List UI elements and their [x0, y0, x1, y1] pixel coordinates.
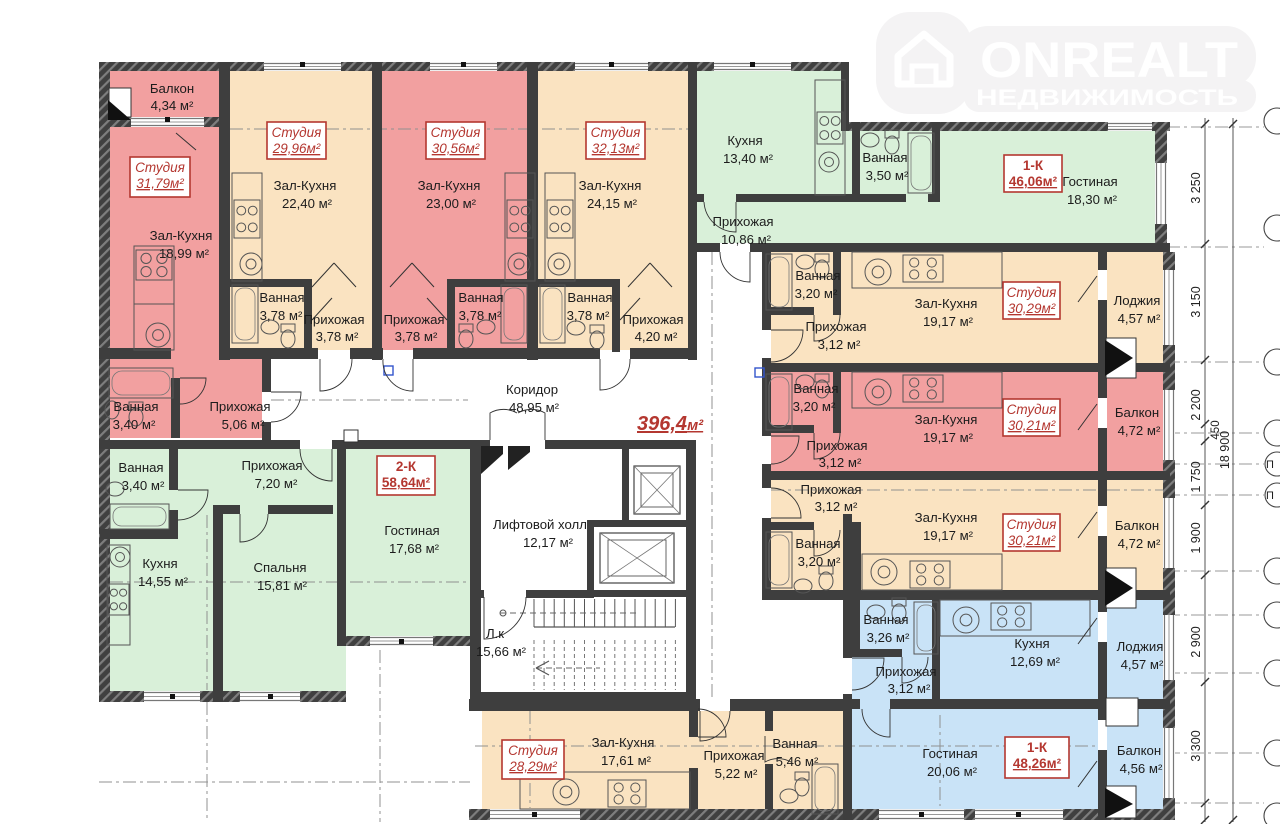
- svg-text:23,00 м²: 23,00 м²: [426, 196, 477, 211]
- svg-text:Прихожая: Прихожая: [805, 319, 866, 334]
- svg-text:Прихожая: Прихожая: [622, 312, 683, 327]
- svg-text:3,78 м²: 3,78 м²: [260, 308, 303, 323]
- svg-text:3,12 м²: 3,12 м²: [819, 455, 862, 470]
- svg-text:4,57 м²: 4,57 м²: [1118, 311, 1161, 326]
- svg-text:Кухня: Кухня: [727, 133, 762, 148]
- svg-text:Лифтовой холл: Лифтовой холл: [493, 517, 587, 532]
- svg-text:3 150: 3 150: [1189, 286, 1203, 317]
- svg-text:Зал-Кухня: Зал-Кухня: [915, 510, 978, 525]
- svg-text:22,40 м²: 22,40 м²: [282, 196, 333, 211]
- svg-text:28,29м²: 28,29м²: [508, 759, 557, 774]
- svg-text:31,79м²: 31,79м²: [136, 176, 184, 191]
- svg-text:П: П: [1266, 459, 1274, 471]
- svg-text:3,12 м²: 3,12 м²: [818, 337, 861, 352]
- svg-text:2 200: 2 200: [1189, 389, 1203, 420]
- svg-text:12,69 м²: 12,69 м²: [1010, 654, 1061, 669]
- svg-text:3 300: 3 300: [1189, 730, 1203, 761]
- svg-text:Прихожая: Прихожая: [806, 438, 867, 453]
- svg-text:30,29м²: 30,29м²: [1008, 301, 1056, 316]
- svg-text:3,78 м²: 3,78 м²: [316, 329, 359, 344]
- svg-text:Прихожая: Прихожая: [875, 664, 936, 679]
- svg-text:17,61 м²: 17,61 м²: [601, 753, 652, 768]
- svg-text:Ванная: Ванная: [863, 612, 908, 627]
- svg-text:Кухня: Кухня: [1014, 636, 1049, 651]
- svg-text:Балкон: Балкон: [150, 81, 194, 96]
- svg-text:4,72 м²: 4,72 м²: [1118, 423, 1161, 438]
- svg-text:Студия: Студия: [135, 160, 185, 175]
- svg-text:Ванная: Ванная: [862, 150, 907, 165]
- svg-text:3,20 м²: 3,20 м²: [793, 399, 836, 414]
- svg-text:12,17 м²: 12,17 м²: [523, 535, 574, 550]
- svg-text:5,06 м²: 5,06 м²: [222, 417, 265, 432]
- svg-text:Студия: Студия: [1007, 285, 1057, 300]
- svg-text:Зал-Кухня: Зал-Кухня: [592, 735, 655, 750]
- svg-text:Прихожая: Прихожая: [241, 458, 302, 473]
- svg-text:3,12 м²: 3,12 м²: [815, 499, 858, 514]
- svg-text:1 750: 1 750: [1189, 461, 1203, 492]
- svg-text:Зал-Кухня: Зал-Кухня: [579, 178, 642, 193]
- svg-text:Прихожая: Прихожая: [703, 748, 764, 763]
- svg-text:П: П: [1266, 490, 1274, 502]
- svg-text:10,86 м²: 10,86 м²: [721, 232, 772, 247]
- svg-text:3,20 м²: 3,20 м²: [798, 554, 841, 569]
- svg-text:19,17 м²: 19,17 м²: [923, 314, 974, 329]
- svg-text:3,50 м²: 3,50 м²: [866, 168, 909, 183]
- svg-text:1-К: 1-К: [1027, 740, 1048, 755]
- svg-text:29,96м²: 29,96м²: [272, 141, 321, 156]
- svg-text:Спальня: Спальня: [254, 560, 307, 575]
- svg-text:Студия: Студия: [1007, 517, 1057, 532]
- svg-text:2 900: 2 900: [1189, 626, 1203, 657]
- svg-text:4,57 м²: 4,57 м²: [1121, 657, 1164, 672]
- svg-text:24,15 м²: 24,15 м²: [587, 196, 638, 211]
- svg-text:3,26 м²: 3,26 м²: [867, 630, 910, 645]
- svg-text:3,40 м²: 3,40 м²: [122, 478, 165, 493]
- svg-text:30,21м²: 30,21м²: [1008, 533, 1056, 548]
- svg-text:Ванная: Ванная: [793, 381, 838, 396]
- svg-text:Студия: Студия: [272, 125, 322, 140]
- svg-text:48,26м²: 48,26м²: [1013, 756, 1062, 771]
- svg-text:Л.к: Л.к: [486, 626, 504, 641]
- svg-text:396,4м²: 396,4м²: [637, 413, 704, 435]
- svg-text:Кухня: Кухня: [142, 556, 177, 571]
- svg-text:30,56м²: 30,56м²: [432, 141, 480, 156]
- svg-text:4,72 м²: 4,72 м²: [1118, 536, 1161, 551]
- svg-text:Ванная: Ванная: [795, 268, 840, 283]
- svg-text:Ванная: Ванная: [113, 399, 158, 414]
- svg-text:Гостиная: Гостиная: [1062, 174, 1117, 189]
- svg-text:15,81 м²: 15,81 м²: [257, 578, 308, 593]
- svg-text:НЕДВИЖИМОСТЬ: НЕДВИЖИМОСТЬ: [976, 85, 1238, 110]
- svg-text:32,13м²: 32,13м²: [592, 141, 640, 156]
- svg-text:3 250: 3 250: [1189, 172, 1203, 203]
- svg-text:4,20 м²: 4,20 м²: [635, 329, 678, 344]
- svg-text:Студия: Студия: [591, 125, 641, 140]
- svg-text:ONREALT: ONREALT: [980, 32, 1238, 88]
- svg-text:Зал-Кухня: Зал-Кухня: [418, 178, 481, 193]
- svg-text:18,99 м²: 18,99 м²: [159, 246, 210, 261]
- svg-text:Прихожая: Прихожая: [303, 312, 364, 327]
- svg-text:46,06м²: 46,06м²: [1009, 174, 1058, 189]
- svg-text:48,95 м²: 48,95 м²: [509, 400, 560, 415]
- svg-text:1-К: 1-К: [1023, 158, 1044, 173]
- svg-text:Студия: Студия: [431, 125, 481, 140]
- svg-text:Ванная: Ванная: [118, 460, 163, 475]
- svg-text:4,56 м²: 4,56 м²: [1120, 761, 1163, 776]
- svg-text:3,78 м²: 3,78 м²: [395, 329, 438, 344]
- svg-text:30,21м²: 30,21м²: [1008, 418, 1056, 433]
- svg-text:Зал-Кухня: Зал-Кухня: [915, 296, 978, 311]
- svg-text:3,78 м²: 3,78 м²: [567, 308, 610, 323]
- svg-text:19,17 м²: 19,17 м²: [923, 528, 974, 543]
- svg-text:Студия: Студия: [1007, 402, 1057, 417]
- svg-text:Ванная: Ванная: [795, 536, 840, 551]
- svg-text:3,40 м²: 3,40 м²: [113, 417, 156, 432]
- svg-text:Балкон: Балкон: [1117, 743, 1161, 758]
- svg-text:13,40 м²: 13,40 м²: [723, 151, 774, 166]
- svg-text:58,64м²: 58,64м²: [382, 475, 431, 490]
- svg-text:Прихожая: Прихожая: [800, 482, 861, 497]
- svg-text:3,20 м²: 3,20 м²: [795, 286, 838, 301]
- svg-text:Коридор: Коридор: [506, 382, 558, 397]
- svg-text:Ванная: Ванная: [772, 736, 817, 751]
- svg-text:Прихожая: Прихожая: [383, 312, 444, 327]
- svg-text:Прихожая: Прихожая: [209, 399, 270, 414]
- svg-text:Гостиная: Гостиная: [384, 523, 439, 538]
- svg-text:18 900: 18 900: [1218, 431, 1232, 469]
- svg-text:17,68 м²: 17,68 м²: [389, 541, 440, 556]
- svg-text:5,46 м²: 5,46 м²: [776, 754, 819, 769]
- svg-text:2-К: 2-К: [396, 459, 417, 474]
- svg-text:Зал-Кухня: Зал-Кухня: [274, 178, 337, 193]
- svg-text:3,78 м²: 3,78 м²: [459, 308, 502, 323]
- svg-text:4,34 м²: 4,34 м²: [151, 98, 194, 113]
- svg-text:18,30 м²: 18,30 м²: [1067, 192, 1118, 207]
- svg-text:Прихожая: Прихожая: [712, 214, 773, 229]
- svg-text:5,22 м²: 5,22 м²: [715, 766, 758, 781]
- svg-text:Зал-Кухня: Зал-Кухня: [150, 228, 213, 243]
- svg-text:Балкон: Балкон: [1115, 405, 1159, 420]
- svg-text:3,12 м²: 3,12 м²: [888, 681, 931, 696]
- svg-text:20,06 м²: 20,06 м²: [927, 764, 978, 779]
- svg-text:15,66 м²: 15,66 м²: [476, 644, 527, 659]
- svg-text:14,55 м²: 14,55 м²: [138, 574, 189, 589]
- svg-text:19,17 м²: 19,17 м²: [923, 430, 974, 445]
- svg-text:Гостиная: Гостиная: [922, 746, 977, 761]
- svg-text:Зал-Кухня: Зал-Кухня: [915, 412, 978, 427]
- svg-text:7,20 м²: 7,20 м²: [255, 476, 298, 491]
- svg-text:Балкон: Балкон: [1115, 518, 1159, 533]
- svg-text:Лоджия: Лоджия: [1114, 293, 1161, 308]
- svg-text:Ванная: Ванная: [458, 290, 503, 305]
- svg-text:Ванная: Ванная: [567, 290, 612, 305]
- svg-text:1 900: 1 900: [1189, 522, 1203, 553]
- svg-text:Студия: Студия: [508, 743, 558, 758]
- svg-text:Лоджия: Лоджия: [1117, 639, 1164, 654]
- svg-text:Ванная: Ванная: [259, 290, 304, 305]
